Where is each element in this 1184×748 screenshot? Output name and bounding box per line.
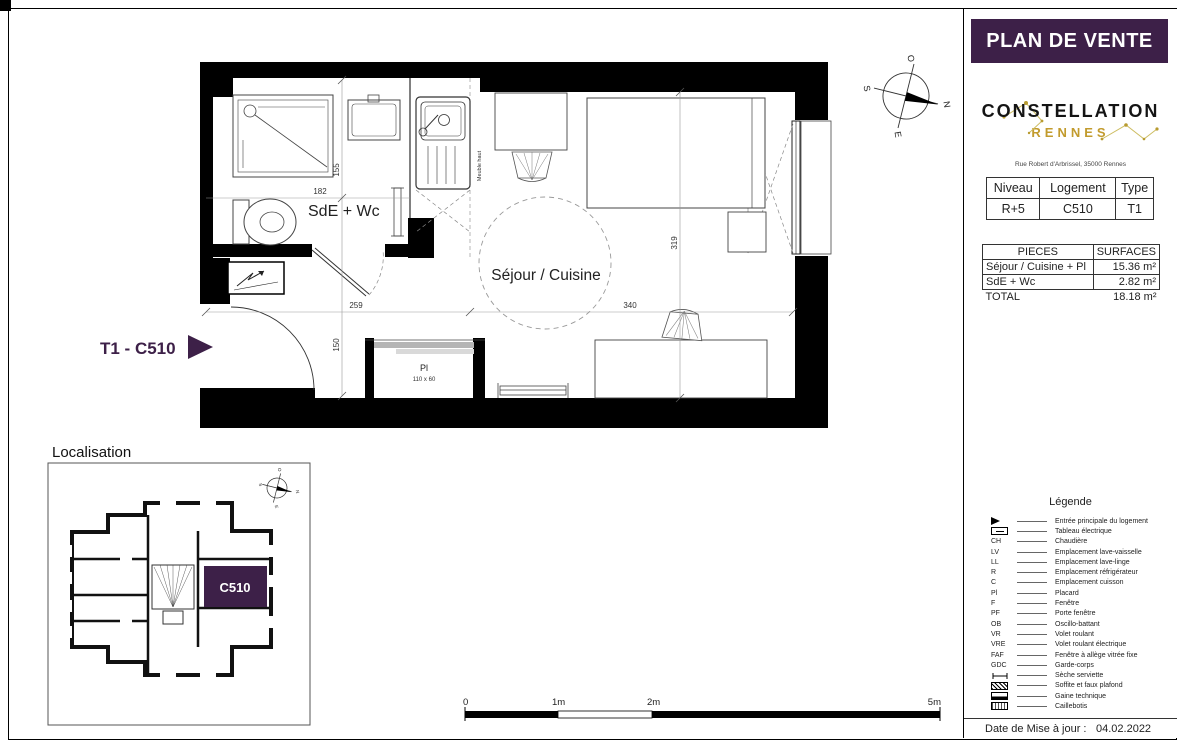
piece-name: Séjour / Cuisine + Pl xyxy=(983,260,1094,275)
legend: Légende Entrée principale du logement Ta… xyxy=(964,496,1177,712)
legend-item: CHChaudière xyxy=(964,537,1177,547)
dim-150: 150 xyxy=(332,338,341,352)
entrance-arrow xyxy=(188,335,213,359)
legend-item: FAFFenêtre à allège vitrée fixe xyxy=(964,650,1177,660)
logo: CONSTELLATION RENNES xyxy=(964,101,1177,140)
unit-info-value-row: R+5 C510 T1 xyxy=(987,199,1154,220)
top-table xyxy=(495,93,567,150)
closet-code: Pl xyxy=(420,363,428,373)
floor-plan-canvas: PF OB VRE SdE + Wc xyxy=(0,0,963,748)
kitchen: Meuble haut xyxy=(416,97,483,232)
legend-dash xyxy=(1017,706,1047,707)
col-logement: Logement xyxy=(1040,178,1116,199)
total-label: TOTAL xyxy=(983,290,1094,305)
scale-5m: 5m xyxy=(928,697,941,708)
date-label: Date de Mise à jour : xyxy=(985,723,1087,735)
col-surfaces: SURFACES xyxy=(1093,245,1159,260)
legend-item: PlPlacard xyxy=(964,588,1177,598)
bed xyxy=(587,98,765,208)
legend-dash xyxy=(1017,644,1047,645)
sheet-title: PLAN DE VENTE xyxy=(971,19,1168,63)
soffit-hatch-icon xyxy=(991,682,1008,690)
legend-dash xyxy=(1017,675,1047,676)
legend-item: FFenêtre xyxy=(964,598,1177,608)
towel-dryer-icon xyxy=(991,672,1009,680)
surfaces-table: PIECES SURFACES Séjour / Cuisine + Pl 15… xyxy=(982,244,1160,304)
dim-182: 182 xyxy=(313,187,327,196)
legend-item: Entrée principale du logement xyxy=(964,516,1177,526)
legend-dash xyxy=(1017,665,1047,666)
dim-319: 319 xyxy=(670,236,679,250)
living-label: Séjour / Cuisine xyxy=(491,267,600,284)
val-logement: C510 xyxy=(1040,199,1116,220)
legend-item: OBOscillo-battant xyxy=(964,619,1177,629)
footer-divider xyxy=(964,718,1177,719)
compass-east: E xyxy=(893,131,904,139)
scale-0: 0 xyxy=(463,697,468,708)
localisation-unit-label: C510 xyxy=(219,580,250,595)
legend-dash xyxy=(1017,541,1047,542)
val-niveau: R+5 xyxy=(987,199,1040,220)
legend-dash xyxy=(1017,613,1047,614)
grating-icon xyxy=(991,702,1008,710)
legend-dash xyxy=(1017,696,1047,697)
legend-dash xyxy=(1017,572,1047,573)
legend-dash xyxy=(1017,624,1047,625)
legend-item: Tableau électrique xyxy=(964,526,1177,536)
legend-dash xyxy=(1017,562,1047,563)
dim-155: 155 xyxy=(332,163,341,177)
title-block-sidebar: PLAN DE VENTE CONSTELLATION RENNES Rue R… xyxy=(963,9,1177,738)
col-pieces: PIECES xyxy=(983,245,1094,260)
radiator xyxy=(498,383,568,398)
table-row: SdE + Wc 2.82 m² xyxy=(983,275,1160,290)
plan-de-vente-sheet: PF OB VRE SdE + Wc xyxy=(0,0,1184,748)
val-type: T1 xyxy=(1116,199,1154,220)
bathroom-label: SdE + Wc xyxy=(308,203,380,220)
legend-item: Caillebotis xyxy=(964,701,1177,711)
desk xyxy=(595,340,767,398)
compass-west: O xyxy=(905,54,916,63)
legend-item: Sèche serviette xyxy=(964,670,1177,680)
living-room: Séjour / Cuisine xyxy=(479,93,767,398)
total-value: 18.18 m² xyxy=(1093,290,1159,305)
nightstand xyxy=(728,212,766,252)
unit-info-table: Niveau Logement Type R+5 C510 T1 xyxy=(986,177,1154,220)
legend-title: Légende xyxy=(964,496,1177,508)
legend-item: CEmplacement cuisson xyxy=(964,578,1177,588)
logo-address: Rue Robert d'Arbrissel, 35000 Rennes xyxy=(964,161,1177,168)
table-circle xyxy=(479,197,611,329)
scale-1m: 1m xyxy=(552,697,565,708)
legend-item: LVEmplacement lave-vaisselle xyxy=(964,547,1177,557)
legend-item: GDCGarde-corps xyxy=(964,660,1177,670)
piece-name: SdE + Wc xyxy=(983,275,1094,290)
legend-item: Gaine technique xyxy=(964,691,1177,701)
closet: Pl 110 x 60 xyxy=(365,340,485,383)
legend-dash xyxy=(1017,531,1047,532)
electrical-panel-icon xyxy=(991,527,1008,535)
unit-info-header-row: Niveau Logement Type xyxy=(987,178,1154,199)
surfaces-total-row: TOTAL 18.18 m² xyxy=(983,290,1160,305)
legend-dash xyxy=(1017,521,1047,522)
legend-dash xyxy=(1017,582,1047,583)
unit-label: T1 - C510 xyxy=(100,339,176,358)
legend-item: VRVolet roulant xyxy=(964,629,1177,639)
localisation-title: Localisation xyxy=(52,444,131,461)
entrance-arrow-icon xyxy=(991,517,1000,525)
logo-name: CONSTELLATION xyxy=(964,101,1177,122)
date-value: 04.02.2022 xyxy=(1096,723,1151,735)
legend-dash xyxy=(1017,685,1047,686)
technical-duct-icon xyxy=(991,692,1008,700)
legend-dash xyxy=(1017,593,1047,594)
compass-south: S xyxy=(862,85,873,93)
piece-surface: 15.36 m² xyxy=(1093,260,1159,275)
legend-item: VREVolet roulant électrique xyxy=(964,640,1177,650)
closet-size: 110 x 60 xyxy=(413,377,436,383)
table-row: Séjour / Cuisine + Pl 15.36 m² xyxy=(983,260,1160,275)
legend-item: PFPorte fenêtre xyxy=(964,609,1177,619)
legend-item: REmplacement réfrigérateur xyxy=(964,567,1177,577)
surfaces-header-row: PIECES SURFACES xyxy=(983,245,1160,260)
compass-north: N xyxy=(941,100,952,108)
dim-259: 259 xyxy=(349,301,363,310)
legend-dash xyxy=(1017,552,1047,553)
upper-cabinet-label: Meuble haut xyxy=(477,150,483,181)
col-type: Type xyxy=(1116,178,1154,199)
col-niveau: Niveau xyxy=(987,178,1040,199)
piece-surface: 2.82 m² xyxy=(1093,275,1159,290)
legend-dash xyxy=(1017,634,1047,635)
legend-dash xyxy=(1017,603,1047,604)
legend-item: LLEmplacement lave-linge xyxy=(964,557,1177,567)
localisation: Localisation xyxy=(48,444,310,725)
scale-bar: 0 1m 2m 5m xyxy=(463,697,941,721)
legend-dash xyxy=(1017,655,1047,656)
legend-item: Soffite et faux plafond xyxy=(964,681,1177,691)
scale-2m: 2m xyxy=(647,697,660,708)
compass-rose: O S N E xyxy=(862,54,953,138)
dim-340: 340 xyxy=(623,301,637,310)
electrical-panel xyxy=(228,262,284,294)
